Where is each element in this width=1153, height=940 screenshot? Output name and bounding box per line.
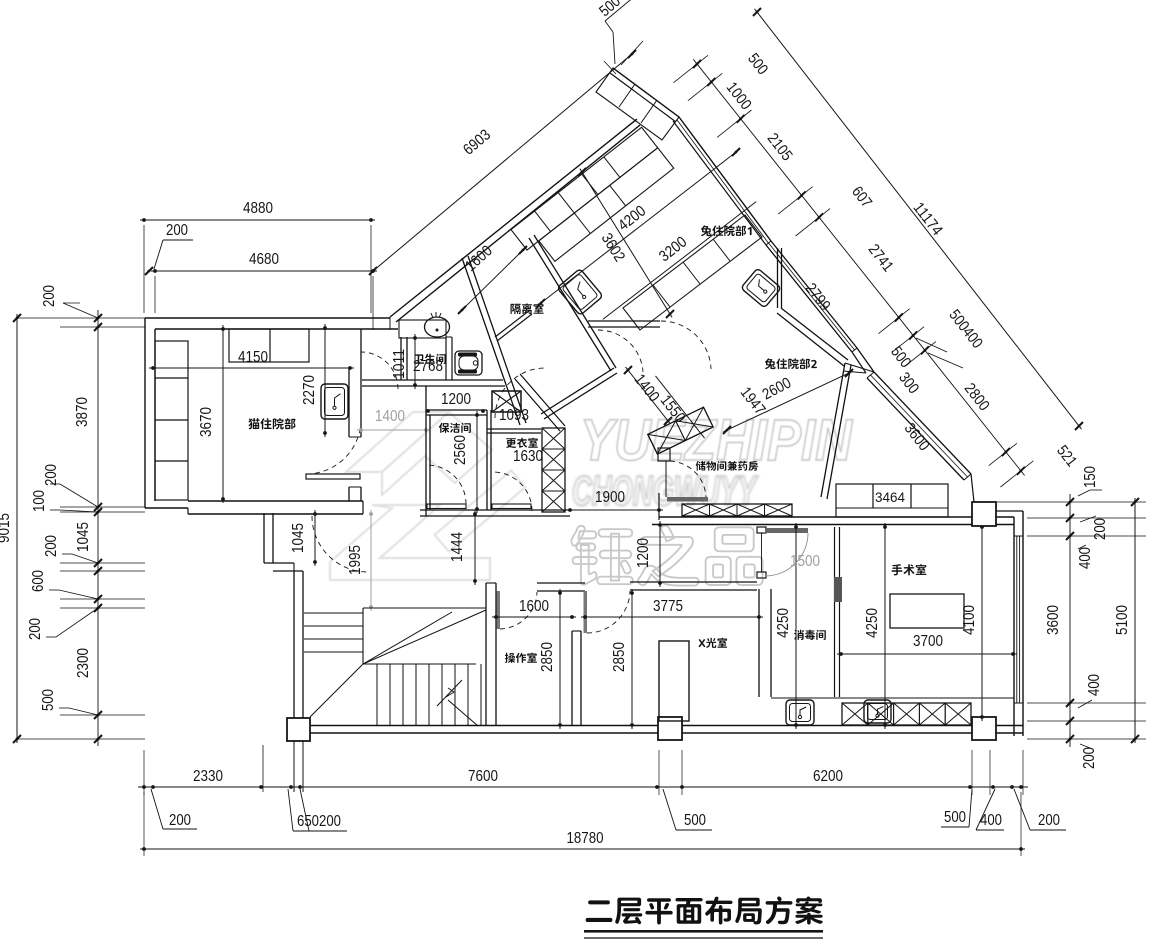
svg-text:2300: 2300: [75, 648, 92, 678]
svg-text:1900: 1900: [595, 489, 625, 506]
svg-text:1045: 1045: [290, 523, 307, 553]
svg-text:1500: 1500: [790, 553, 820, 570]
svg-text:400: 400: [1086, 674, 1103, 696]
svg-text:3700: 3700: [913, 633, 943, 650]
svg-text:1444: 1444: [449, 532, 466, 562]
svg-text:650200: 650200: [297, 813, 341, 830]
svg-text:200: 200: [41, 285, 58, 307]
svg-text:1011: 1011: [391, 349, 408, 379]
svg-text:2270: 2270: [301, 375, 318, 405]
svg-text:200: 200: [1038, 812, 1060, 829]
svg-text:1200: 1200: [635, 538, 652, 568]
svg-text:3870: 3870: [74, 397, 91, 427]
svg-text:200: 200: [1092, 518, 1109, 540]
svg-text:200: 200: [166, 222, 188, 239]
svg-text:200: 200: [169, 812, 191, 829]
svg-text:2768: 2768: [413, 358, 443, 375]
svg-text:500: 500: [684, 812, 706, 829]
svg-text:2560: 2560: [452, 435, 469, 465]
svg-text:1630: 1630: [513, 448, 543, 465]
svg-text:200: 200: [43, 535, 60, 557]
svg-text:18780: 18780: [567, 830, 604, 847]
svg-text:1995: 1995: [347, 545, 364, 575]
svg-text:3464: 3464: [875, 490, 905, 505]
svg-text:200: 200: [43, 464, 60, 486]
svg-text:600: 600: [30, 570, 47, 592]
svg-text:3670: 3670: [198, 407, 215, 437]
svg-text:4880: 4880: [243, 200, 273, 217]
svg-text:7600: 7600: [468, 768, 498, 785]
svg-text:200: 200: [1081, 747, 1098, 769]
svg-text:500: 500: [944, 809, 966, 826]
svg-text:4680: 4680: [249, 251, 279, 268]
svg-text:400: 400: [1077, 547, 1094, 569]
svg-text:150: 150: [1082, 466, 1099, 488]
svg-text:1200: 1200: [441, 391, 471, 408]
svg-text:3600: 3600: [1045, 605, 1062, 635]
svg-text:YUEZHIPIN: YUEZHIPIN: [580, 408, 853, 473]
svg-text:3775: 3775: [653, 598, 683, 615]
svg-text:1045: 1045: [75, 522, 92, 552]
svg-text:1600: 1600: [519, 598, 549, 615]
svg-text:2850: 2850: [611, 642, 628, 672]
svg-text:4250: 4250: [864, 608, 881, 638]
svg-text:9015: 9015: [0, 513, 13, 543]
svg-text:4250: 4250: [775, 608, 792, 638]
svg-text:100: 100: [31, 490, 48, 512]
svg-text:2330: 2330: [193, 768, 223, 785]
svg-text:500: 500: [40, 689, 57, 711]
svg-text:2850: 2850: [539, 642, 556, 672]
svg-text:6200: 6200: [813, 768, 843, 785]
svg-text:200: 200: [27, 618, 44, 640]
svg-text:4150: 4150: [238, 349, 268, 366]
svg-text:5100: 5100: [1114, 605, 1131, 635]
svg-text:4100: 4100: [961, 605, 978, 635]
svg-text:1400: 1400: [375, 408, 405, 425]
